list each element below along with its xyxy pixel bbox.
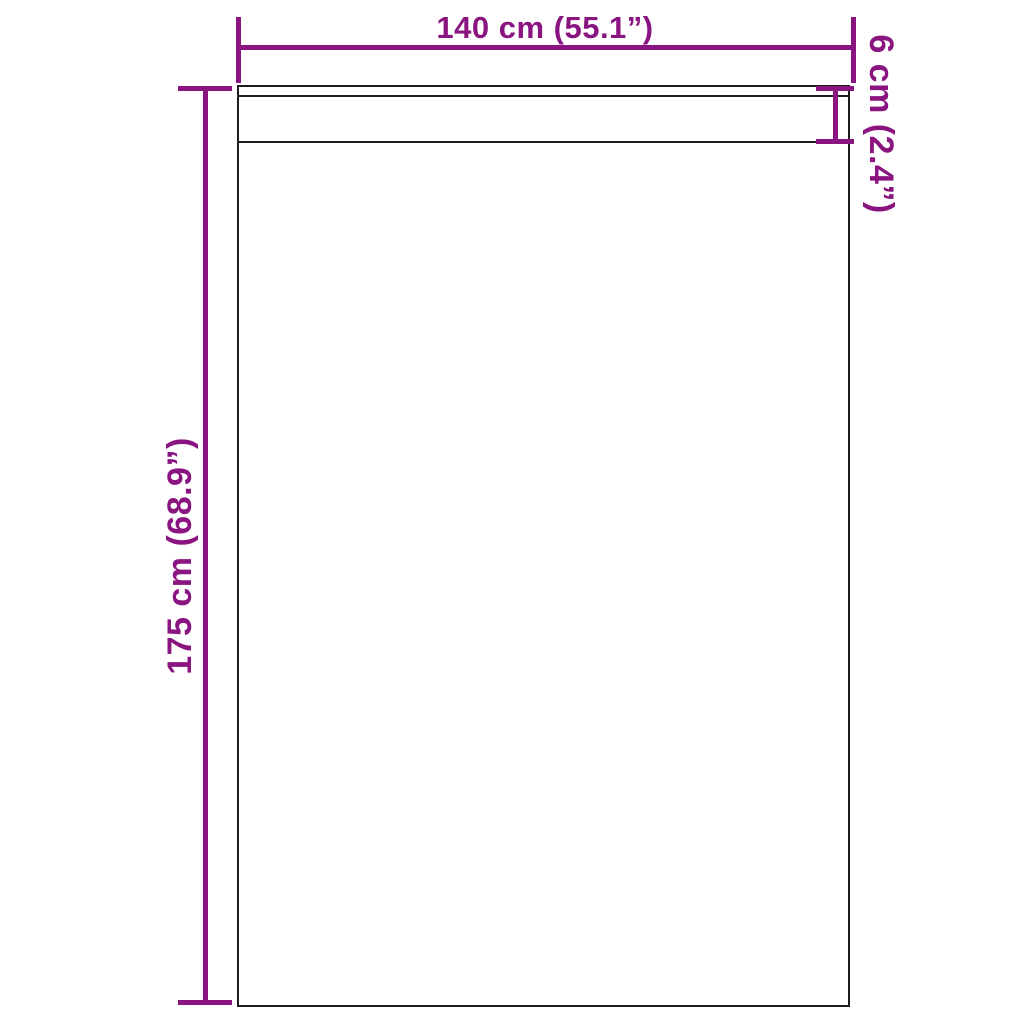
width-dimension-line [238,45,852,50]
height-dimension-tick-top [178,86,232,91]
width-dimension-label: 140 cm (55.1”) [436,12,653,43]
height-dimension-label: 175 cm (68.9”) [163,437,197,675]
height-dimension-line [203,87,208,1003]
header-strip-dimension-label: 6 cm (2.4”) [864,34,898,213]
header-strip-dimension-tick-bottom [816,139,854,144]
width-dimension-tick-right [851,17,856,83]
product-outline [237,85,850,1007]
width-dimension-tick-left [236,17,241,83]
product-dimension-diagram: 140 cm (55.1”) 175 cm (68.9”) 6 cm (2.4”… [0,0,1024,1024]
header-strip-top-seam-line [237,95,850,97]
height-dimension-tick-bottom [178,1000,232,1005]
header-strip-dimension-tick-top [816,86,854,91]
header-strip-dimension-line [833,88,838,144]
header-strip-bottom-seam-line [237,141,850,143]
